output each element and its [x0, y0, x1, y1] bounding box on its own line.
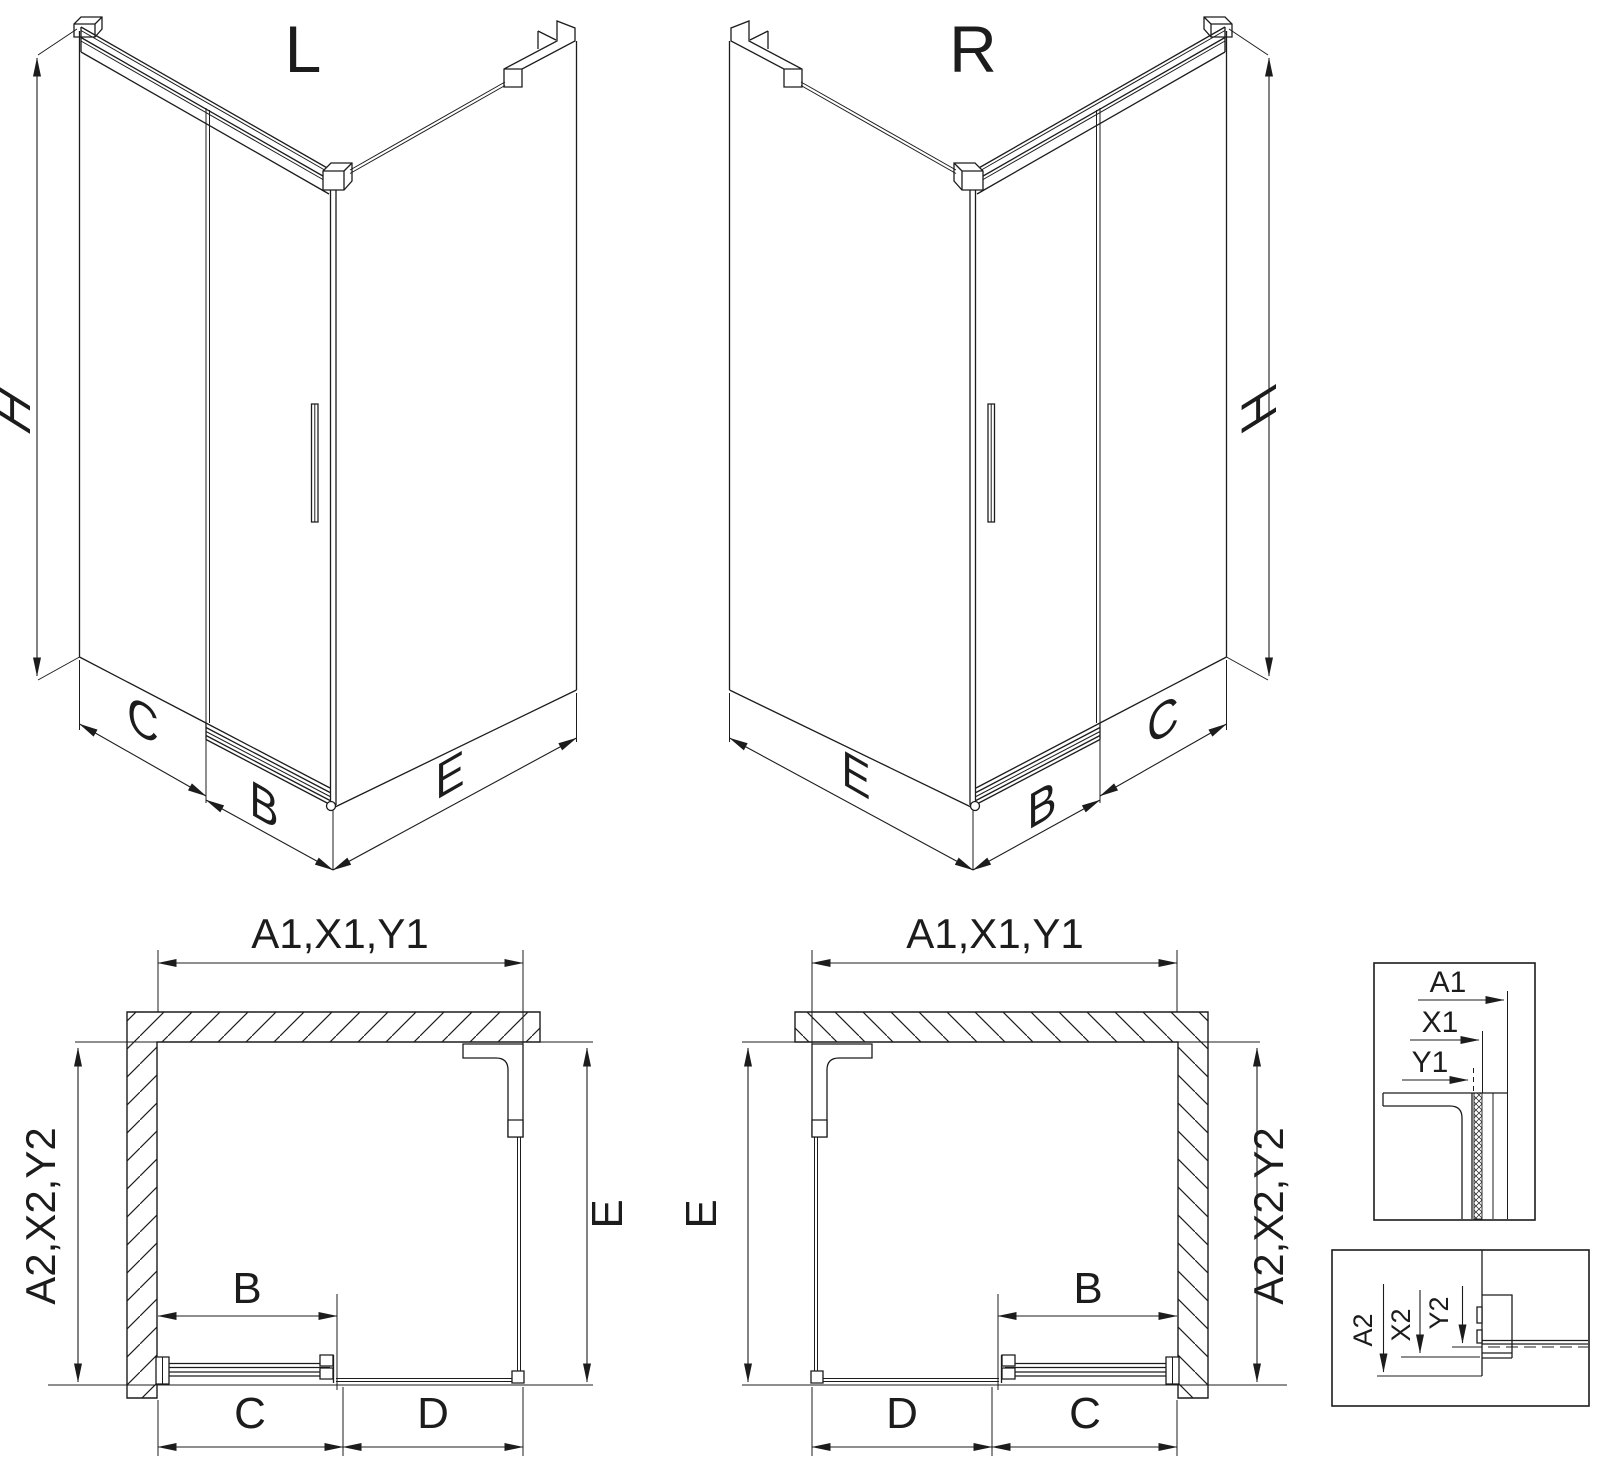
plan-right-dim-side: A2,X2,Y2: [1245, 1127, 1292, 1304]
plan-left-dim-c: C: [234, 1389, 266, 1438]
detail-top-dim-x1: X1: [1422, 1006, 1459, 1039]
door-fixed-divider: [206, 108, 210, 723]
iso-left-dim-b: B: [249, 769, 278, 842]
iso-view-left: [37, 17, 577, 870]
iso-left-dim-h: H: [0, 374, 41, 445]
iso-left-dim-c: C: [127, 683, 158, 757]
fixed-glass-edge: [518, 1137, 521, 1371]
detail-bottom-dim-a2: A2: [1348, 1313, 1378, 1346]
iso-right-dim-c: C: [1147, 683, 1178, 757]
iso-right-dim-e: E: [841, 739, 870, 812]
plan-view-right: [742, 950, 1287, 1456]
iso-right-dim-h: H: [1231, 373, 1287, 444]
plan-left-dim-b: B: [232, 1264, 261, 1313]
plan-right-dim-c: C: [1069, 1389, 1101, 1438]
return-panel-top-edge: [350, 82, 505, 174]
dim-floor-lines: [80, 660, 577, 870]
iso-left-title: L: [285, 12, 322, 86]
plan-right-dim-top: A1,X1,Y1: [906, 910, 1083, 957]
wall-hatched: [127, 1012, 540, 1398]
fixed-panel-bottom-edge: [336, 1379, 512, 1382]
technical-drawing-sheet: L R H C B E H E B C A1,X1,Y1 A2,X2,Y2 E …: [0, 0, 1600, 1458]
plan-left-dim-top: A1,X1,Y1: [251, 910, 428, 957]
corner-edge: [331, 190, 337, 810]
shower-enclosure-diagram: L R H C B E H E B C A1,X1,Y1 A2,X2,Y2 E …: [0, 0, 1600, 1458]
detail-top-dim-a1: A1: [1430, 966, 1467, 999]
iso-left-dim-e: E: [435, 739, 464, 812]
wall-profile-section: [1383, 1093, 1508, 1219]
plan-left-dim-d: D: [417, 1389, 449, 1438]
glass-guide-block: [512, 1371, 524, 1383]
detail-bottom-dim-y2: Y2: [1424, 1296, 1454, 1329]
detail-bottom-dim-x2: X2: [1386, 1308, 1416, 1341]
dim-h-lines: [37, 29, 80, 680]
plan-left-dim-side: A2,X2,Y2: [17, 1127, 64, 1304]
iso-view-right: [730, 17, 1270, 870]
iso-right-title: R: [949, 12, 997, 86]
detail-a1x1y1: [1374, 963, 1535, 1220]
sliding-door-track: [156, 1355, 334, 1384]
plan-left-dim-e: E: [583, 1199, 632, 1228]
plan-right-dim-e: E: [677, 1199, 726, 1228]
plan-right-dim-d: D: [886, 1389, 918, 1438]
plan-right-dim-b: B: [1073, 1264, 1102, 1313]
detail-top-dim-y1: Y1: [1412, 1046, 1449, 1079]
iso-right-dim-b: B: [1027, 769, 1056, 842]
wall-bracket: [504, 21, 575, 87]
plan-view-left: [48, 950, 593, 1456]
